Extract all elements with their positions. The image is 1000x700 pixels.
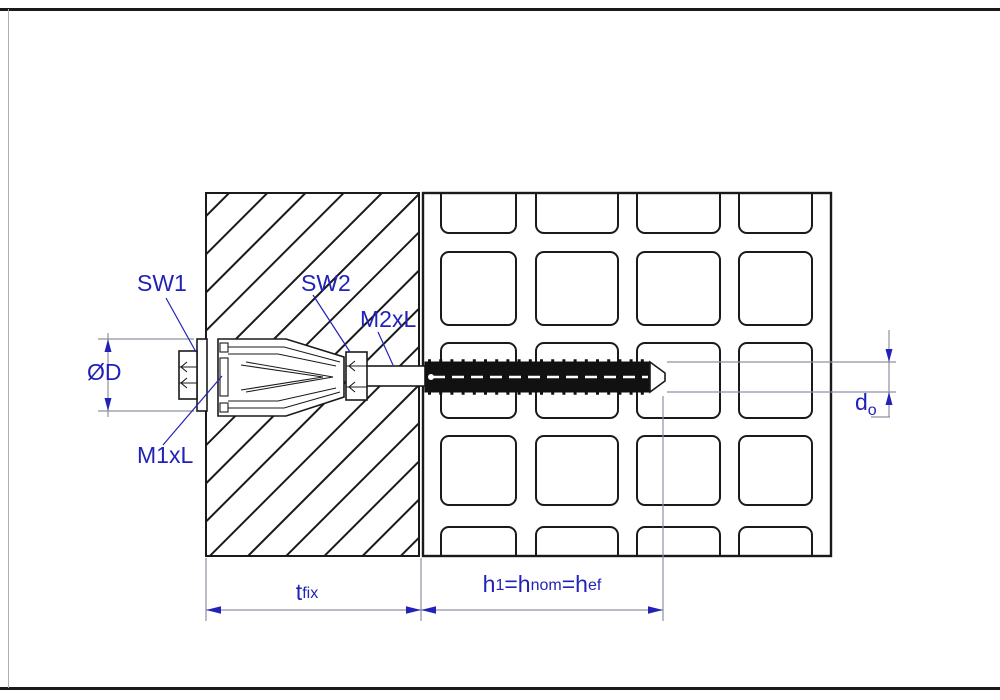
- label-sw2-text: SW2: [301, 270, 351, 296]
- label-embedment-depth: h1=hnom=hef: [422, 573, 662, 596]
- label-m1xl: M1xL: [137, 444, 193, 467]
- frame-top-border: [0, 8, 1000, 11]
- hex-head: [179, 351, 197, 399]
- label-diameter-d: ØD: [87, 361, 122, 384]
- connecting-rod: [364, 366, 425, 386]
- label-hole-diameter: do: [855, 391, 877, 414]
- threaded-rod: [425, 361, 665, 393]
- label-sw2: SW2: [301, 272, 351, 295]
- technical-drawing-canvas: SW1 SW2 M2xL M1xL ØD tfix h1=hnom=hef do: [0, 0, 1000, 700]
- label-sw1: SW1: [137, 272, 187, 295]
- label-m2xl: M2xL: [360, 308, 416, 331]
- label-sw1-text: SW1: [137, 270, 187, 296]
- label-diameter-text: ØD: [87, 359, 122, 385]
- label-m2xl-text: M2xL: [360, 306, 416, 332]
- label-tfix-sub: fix: [302, 586, 318, 609]
- frame-bottom-border: [0, 687, 1000, 690]
- sw1-leader: [166, 298, 196, 352]
- rod-end-mark: [428, 374, 434, 380]
- drill-hole-clearance: [208, 340, 219, 415]
- label-do-sub: o: [868, 402, 877, 419]
- label-tfix: tfix: [247, 581, 367, 604]
- label-do-main: d: [855, 389, 868, 415]
- lock-nut: [346, 352, 367, 400]
- label-m1xl-text: M1xL: [137, 442, 193, 468]
